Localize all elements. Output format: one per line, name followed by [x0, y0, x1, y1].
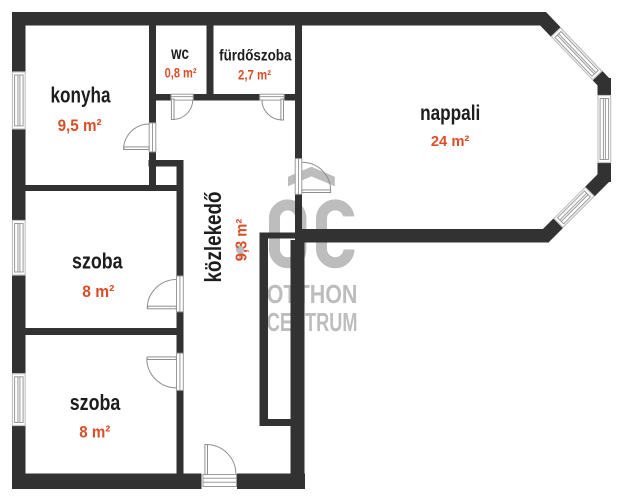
svg-text:8 m²: 8 m² — [82, 283, 114, 301]
svg-text:24 m²: 24 m² — [431, 133, 470, 150]
svg-text:9,3 m²: 9,3 m² — [234, 219, 251, 262]
svg-text:szoba: szoba — [70, 390, 121, 415]
svg-text:0,8 m²: 0,8 m² — [165, 65, 197, 80]
svg-text:8 m²: 8 m² — [79, 424, 110, 442]
svg-text:9,5 m²: 9,5 m² — [58, 117, 102, 135]
svg-text:szoba: szoba — [72, 249, 123, 274]
svg-text:fürdőszoba: fürdőszoba — [219, 47, 291, 64]
svg-text:CENTRUM: CENTRUM — [267, 309, 358, 337]
svg-text:közlekedő: közlekedő — [200, 192, 226, 283]
svg-text:wc: wc — [170, 43, 189, 63]
svg-text:OTTHON: OTTHON — [267, 281, 358, 309]
svg-text:nappali: nappali — [420, 102, 480, 125]
svg-text:2,7 m²: 2,7 m² — [238, 67, 271, 83]
svg-text:konyha: konyha — [51, 83, 112, 108]
